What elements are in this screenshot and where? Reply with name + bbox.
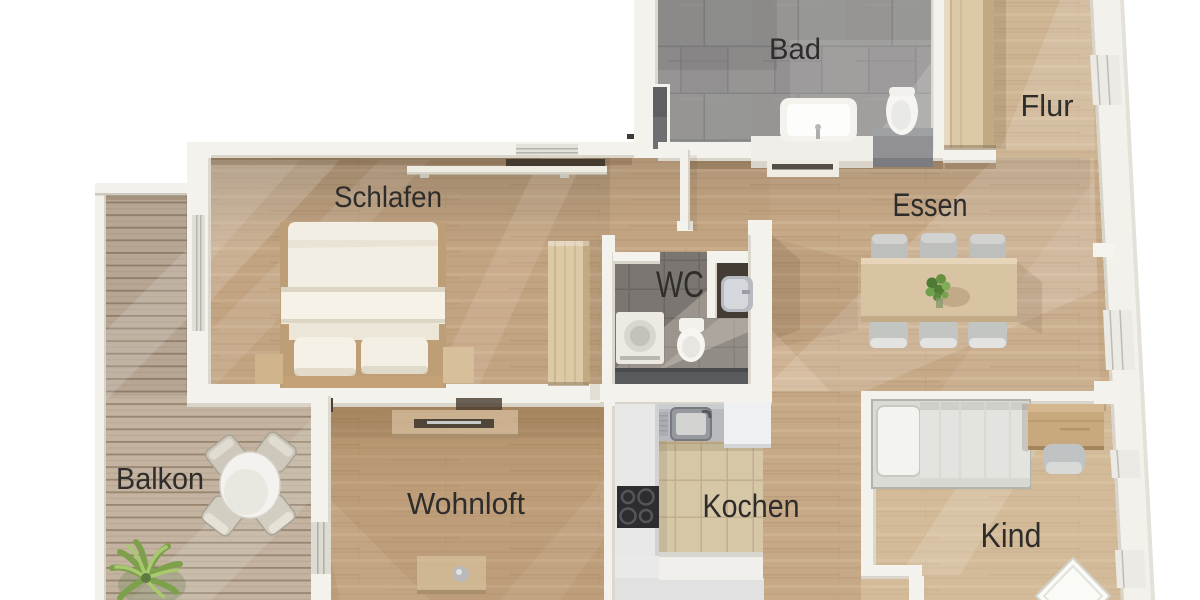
svg-text:Essen: Essen [893,187,968,223]
svg-text:Balkon: Balkon [116,461,204,496]
svg-text:Schlafen: Schlafen [334,181,442,214]
svg-text:Wohnloft: Wohnloft [407,486,525,521]
svg-text:WC: WC [656,264,704,305]
svg-text:Flur: Flur [1021,88,1074,123]
svg-text:Bad: Bad [769,33,821,66]
svg-text:Kind: Kind [981,517,1042,555]
svg-text:Kochen: Kochen [703,488,800,524]
